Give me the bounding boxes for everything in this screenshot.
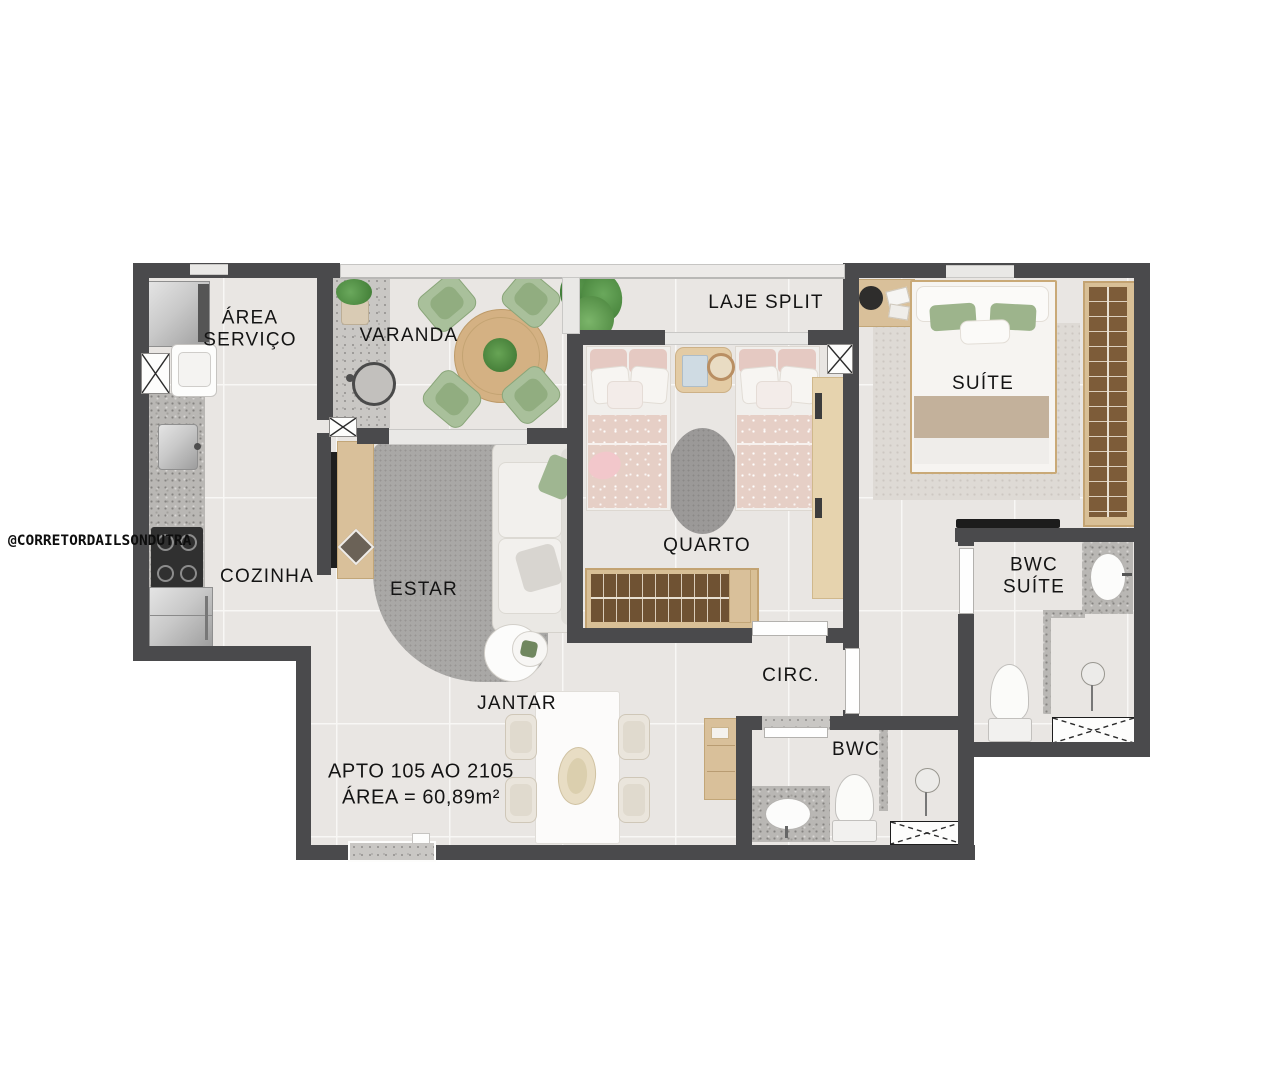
wall-cozinha-estar — [317, 433, 331, 575]
washing-machine — [148, 281, 210, 347]
closet-interior — [591, 574, 749, 622]
shoe-cabinet — [729, 569, 751, 623]
wall-varanda-estar-stub-l — [357, 428, 389, 444]
kitchen-faucet — [194, 443, 201, 450]
bed-pillow-small — [607, 381, 643, 409]
wall-left — [133, 263, 149, 660]
nightstand — [675, 347, 732, 393]
varanda-sliding-glass-door — [389, 429, 527, 445]
exterior-cutout-right — [974, 757, 1135, 849]
room-label-area-servico: ÁREA SERVIÇO — [203, 308, 297, 353]
fridge — [149, 587, 213, 649]
balcony-round-sink — [352, 362, 396, 406]
room-label-bwc: BWC — [832, 739, 880, 761]
bwc-suite-door — [959, 548, 974, 614]
nightstand-tray — [707, 353, 735, 381]
wall-right — [1134, 263, 1150, 757]
toilet-bowl — [835, 774, 874, 826]
floorplan-canvas: ÁREA SERVIÇO VARANDA LAJE SPLIT COZINHA … — [0, 0, 1280, 1066]
sideboard — [704, 718, 740, 800]
fridge-handle — [205, 596, 208, 640]
chair-pad — [623, 721, 645, 753]
room-label-estar: ESTAR — [390, 579, 458, 601]
balcony-table-plant — [483, 338, 517, 372]
quarto-rug — [666, 428, 739, 534]
unit-apto-label: APTO 105 AO 2105 — [328, 759, 514, 786]
chair-pad — [511, 279, 552, 319]
wall-bwc-left — [736, 716, 752, 860]
desk-papers — [888, 304, 910, 321]
bwc-door — [764, 727, 828, 738]
quarto-desk — [812, 377, 845, 599]
suite-wardrobe — [1083, 281, 1137, 527]
shower-arm — [925, 792, 927, 816]
bwc-faucet — [785, 826, 788, 838]
bed-footer — [914, 438, 1049, 464]
coffee-table-plant — [520, 640, 539, 659]
wardrobe-interior — [1089, 287, 1127, 517]
wall-quarto-top-r — [808, 330, 843, 345]
bwcsuite-faucet — [1122, 573, 1132, 576]
quarto-door — [752, 621, 828, 636]
chair-pad — [511, 375, 552, 415]
wall-suite-bottom — [955, 528, 1135, 542]
wall-bwcsuite-left-lower — [958, 614, 974, 860]
bed-blanket — [737, 415, 816, 508]
circ-corridor-door — [845, 648, 860, 714]
wall-quarto-bottom-corner — [826, 628, 843, 643]
watermark-text: @CORRETORDAILSONDUTRA — [8, 533, 191, 549]
wall-servico-varanda — [317, 263, 333, 420]
varanda-laje-glass-divider — [562, 277, 580, 334]
single-bed-left — [586, 346, 671, 511]
platter-inner — [565, 757, 588, 795]
exterior-cutout-left — [133, 661, 296, 861]
shower-partition-v — [1043, 610, 1051, 714]
fridge-door-line — [150, 615, 212, 616]
entrance-threshold — [348, 841, 436, 862]
wall-quarto-bottom — [567, 628, 752, 643]
wardrobe-rod — [1107, 287, 1109, 517]
shower-head — [915, 768, 940, 793]
room-label-circ: CIRC. — [762, 665, 820, 687]
blanket-fold — [737, 443, 816, 445]
shower-partition-v — [879, 727, 888, 811]
suite-desk — [856, 279, 915, 327]
suite-window — [946, 265, 1014, 278]
sideboard-shelf-line — [707, 771, 735, 772]
shower-arm — [1091, 685, 1093, 711]
wall-quarto-left — [567, 330, 583, 643]
chair-pad — [432, 379, 473, 419]
room-label-bwc-suite: BWC SUÍTE — [1003, 555, 1065, 600]
room-label-quarto: QUARTO — [663, 535, 751, 557]
sideboard-item — [711, 727, 729, 739]
room-label-suite: SUÍTE — [952, 373, 1014, 395]
entrance-door-handle — [412, 833, 430, 844]
chair-pad — [510, 784, 532, 816]
desk-item — [815, 393, 822, 419]
room-label-jantar: JANTAR — [477, 693, 557, 715]
gas-point-x-icon — [329, 417, 357, 437]
shower-head — [1081, 662, 1105, 686]
room-label-cozinha: COZINHA — [220, 566, 314, 588]
laundry-sink-basin — [178, 352, 211, 387]
wall-quarto-suite — [843, 263, 859, 650]
bwcsuite-sink — [1090, 553, 1126, 601]
chair-pad — [510, 721, 532, 753]
wall-lower-left — [296, 646, 311, 860]
shower-box-x-icon — [890, 821, 964, 845]
wall-bwcsuite-bottom — [958, 742, 1150, 757]
ac-split-x-icon — [827, 344, 853, 374]
sideboard-shelf-line — [707, 745, 735, 746]
wall-top-notch — [190, 264, 228, 275]
blanket-fold — [588, 443, 667, 445]
room-label-varanda: VARANDA — [360, 325, 459, 347]
wall-quarto-top-l — [567, 330, 665, 345]
balcony-parapet — [340, 264, 845, 279]
chair-pad — [623, 784, 645, 816]
suite-sliding-door — [956, 519, 1060, 528]
room-label-laje-split: LAJE SPLIT — [708, 292, 824, 314]
chair-pad — [427, 283, 468, 323]
balcony-counter-plant — [336, 279, 372, 305]
duct-shaft-x-icon — [141, 353, 170, 394]
wall-top-left — [133, 263, 340, 278]
shower-box-x-icon — [1052, 717, 1135, 744]
desk-item — [815, 498, 822, 518]
nightstand-book — [682, 355, 708, 387]
single-bed-right — [735, 346, 820, 511]
quarto-window — [665, 332, 808, 345]
burner — [180, 565, 197, 582]
unit-area-label: ÁREA = 60,89m² — [342, 785, 500, 812]
closet-rod — [591, 597, 749, 599]
toilet-tank — [832, 820, 877, 842]
bwc-sink — [765, 798, 811, 830]
bed-blanket-beige — [914, 396, 1049, 438]
balcony-sink-faucet — [346, 374, 354, 382]
dining-chair — [618, 714, 650, 760]
bed-pillow-small — [756, 381, 792, 409]
wall-kitchen-bottom — [133, 646, 311, 661]
dining-chair — [505, 714, 537, 760]
dining-chair — [618, 777, 650, 823]
bed-pillow-small — [960, 319, 1011, 345]
kitchen-sink — [158, 424, 198, 470]
toilet-bowl — [990, 664, 1029, 722]
wall-bwc-top — [830, 716, 974, 730]
toilet-tank — [988, 718, 1032, 742]
burner — [157, 565, 174, 582]
desk-chair — [859, 286, 883, 310]
